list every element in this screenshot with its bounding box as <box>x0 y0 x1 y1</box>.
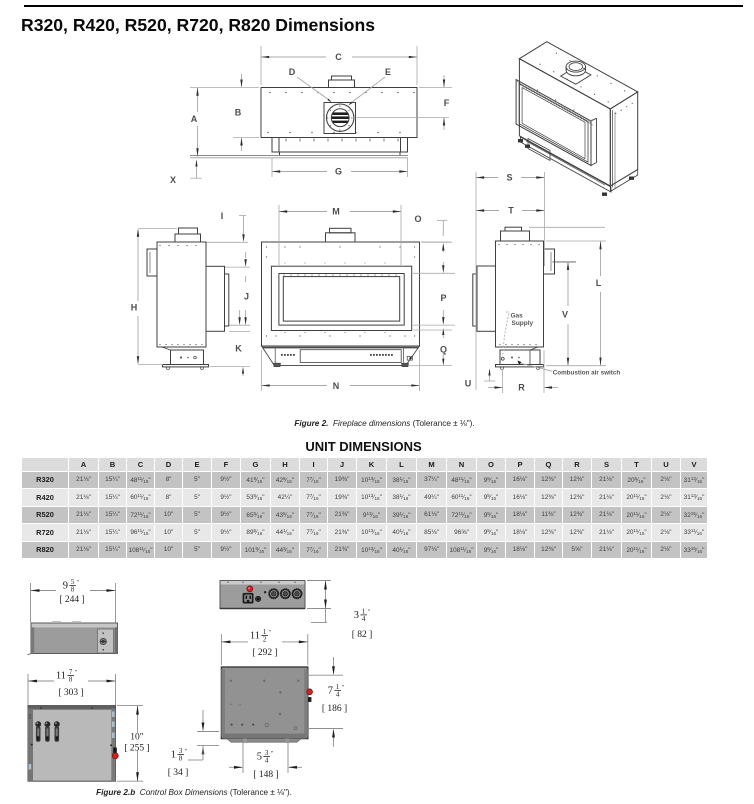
svg-text:″: ″ <box>77 580 80 586</box>
svg-text:G: G <box>335 167 342 177</box>
svg-text:4: 4 <box>362 615 366 623</box>
svg-text:1: 1 <box>362 607 366 615</box>
svg-text:Supply: Supply <box>512 320 534 327</box>
svg-text:S: S <box>506 173 512 183</box>
svg-text:V: V <box>562 310 568 320</box>
svg-text:[ 292 ]: [ 292 ] <box>252 648 277 658</box>
svg-text:8: 8 <box>71 586 75 594</box>
svg-text:M: M <box>332 207 340 217</box>
svg-text:U: U <box>465 379 472 389</box>
svg-text:3: 3 <box>265 749 269 757</box>
svg-text:[ 255 ]: [ 255 ] <box>124 744 149 754</box>
svg-text:1: 1 <box>336 683 340 691</box>
svg-text:[ 34 ]: [ 34 ] <box>168 768 189 778</box>
svg-text:B: B <box>235 108 242 118</box>
svg-text:T: T <box>508 206 514 216</box>
svg-text:X: X <box>170 175 176 185</box>
svg-text:Combustion air switch: Combustion air switch <box>553 370 621 377</box>
svg-text:A: A <box>191 114 198 124</box>
svg-text:7: 7 <box>69 668 73 676</box>
svg-text:H: H <box>131 303 138 313</box>
svg-text:11: 11 <box>56 671 66 682</box>
svg-text:″: ″ <box>271 751 274 757</box>
svg-text:[ 148 ]: [ 148 ] <box>253 770 278 780</box>
svg-text:4: 4 <box>336 691 340 699</box>
svg-text:I: I <box>221 211 224 221</box>
svg-text:″: ″ <box>185 749 188 755</box>
svg-text:7: 7 <box>328 686 333 697</box>
svg-text:E: E <box>385 67 391 77</box>
svg-text:″: ″ <box>75 670 78 676</box>
svg-text:P: P <box>440 293 446 303</box>
svg-text:C: C <box>335 52 342 62</box>
svg-text:J: J <box>244 292 249 302</box>
svg-text:3: 3 <box>354 610 359 621</box>
svg-text:″: ″ <box>269 630 272 636</box>
svg-text:1: 1 <box>171 750 176 761</box>
svg-text:Gas: Gas <box>511 312 524 319</box>
svg-text:8: 8 <box>179 755 183 763</box>
svg-text:R: R <box>518 383 525 393</box>
svg-text:5: 5 <box>71 578 75 586</box>
svg-text:10″: 10″ <box>130 733 144 743</box>
svg-text:8: 8 <box>69 676 73 684</box>
svg-text:1: 1 <box>263 628 267 636</box>
svg-text:O: O <box>414 214 421 224</box>
svg-text:L: L <box>596 278 602 288</box>
svg-text:″: ″ <box>368 609 371 615</box>
svg-text:[ 82 ]: [ 82 ] <box>352 630 373 640</box>
svg-text:[ 244 ]: [ 244 ] <box>59 595 84 605</box>
svg-text:[ 186 ]: [ 186 ] <box>322 704 347 714</box>
svg-text:4: 4 <box>265 757 269 765</box>
svg-text:F: F <box>444 98 450 108</box>
svg-text:11: 11 <box>250 631 260 642</box>
svg-text:2: 2 <box>263 636 267 644</box>
svg-text:[ 303 ]: [ 303 ] <box>58 688 83 698</box>
svg-text:9: 9 <box>63 581 68 592</box>
svg-text:D: D <box>289 67 296 77</box>
svg-text:K: K <box>235 344 242 354</box>
svg-text:5: 5 <box>257 752 262 763</box>
svg-text:″: ″ <box>342 685 345 691</box>
svg-text:3: 3 <box>179 747 183 755</box>
svg-text:N: N <box>333 381 340 391</box>
